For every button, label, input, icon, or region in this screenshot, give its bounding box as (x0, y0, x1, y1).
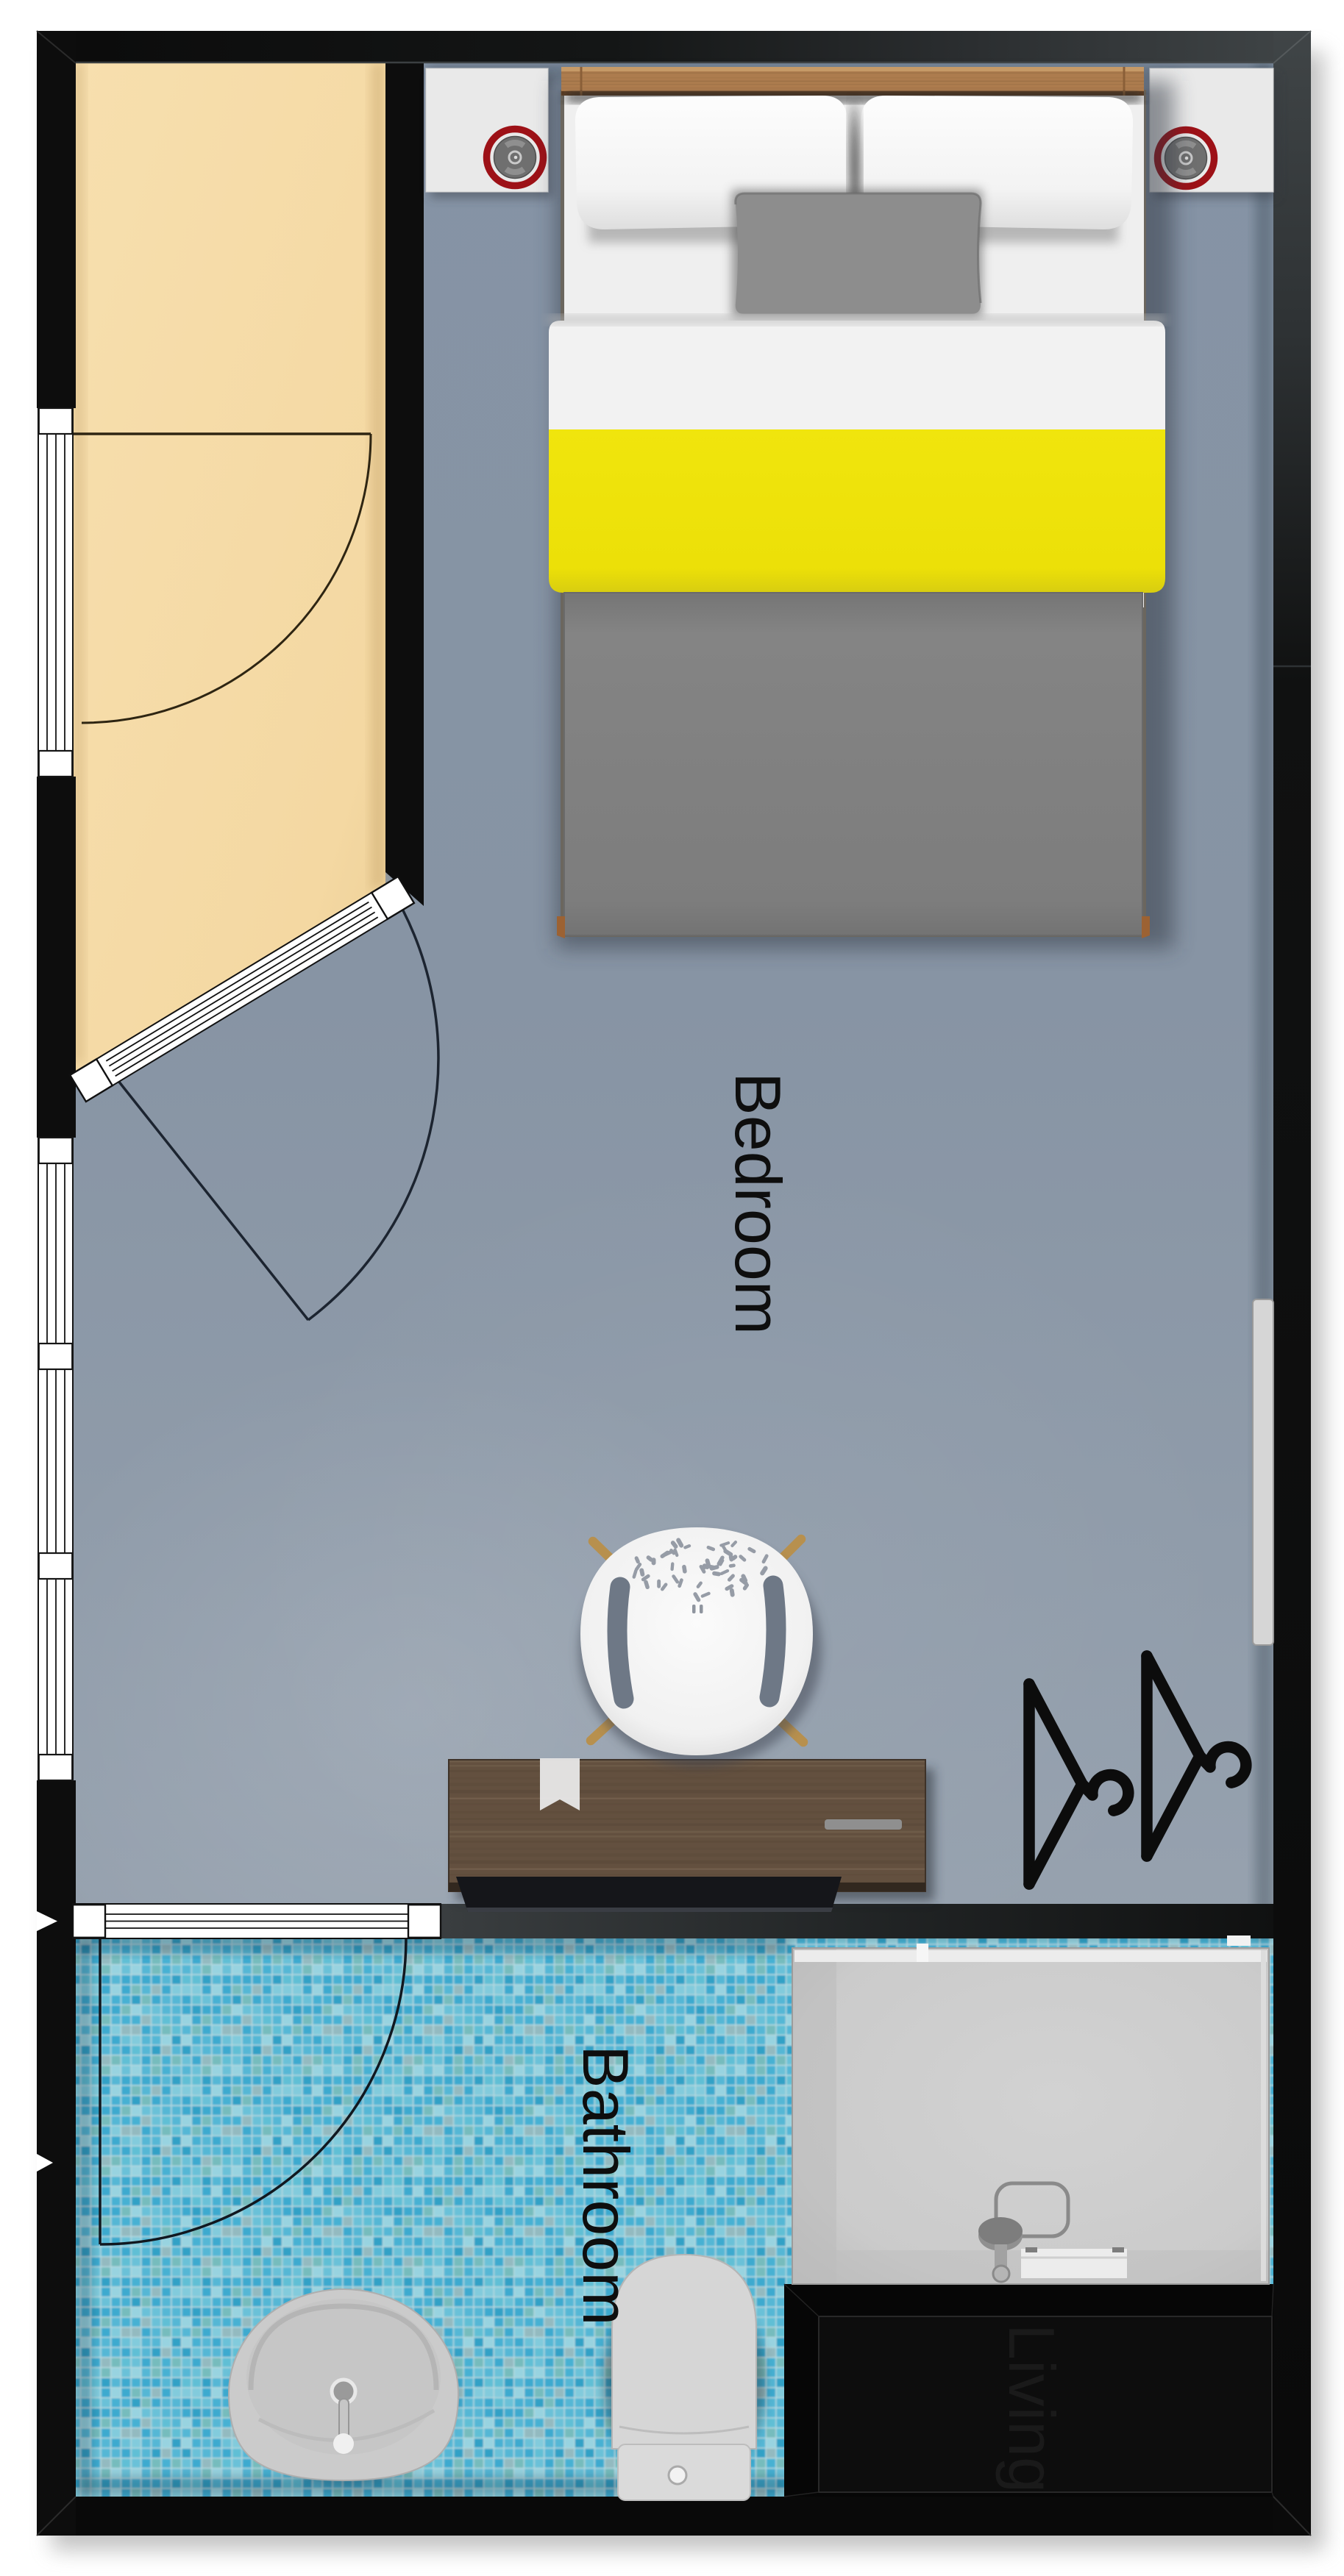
svg-text:Bedroom: Bedroom (722, 1072, 794, 1335)
svg-text:Bathroom: Bathroom (569, 2045, 642, 2326)
svg-text:Living: Living (995, 2324, 1068, 2493)
